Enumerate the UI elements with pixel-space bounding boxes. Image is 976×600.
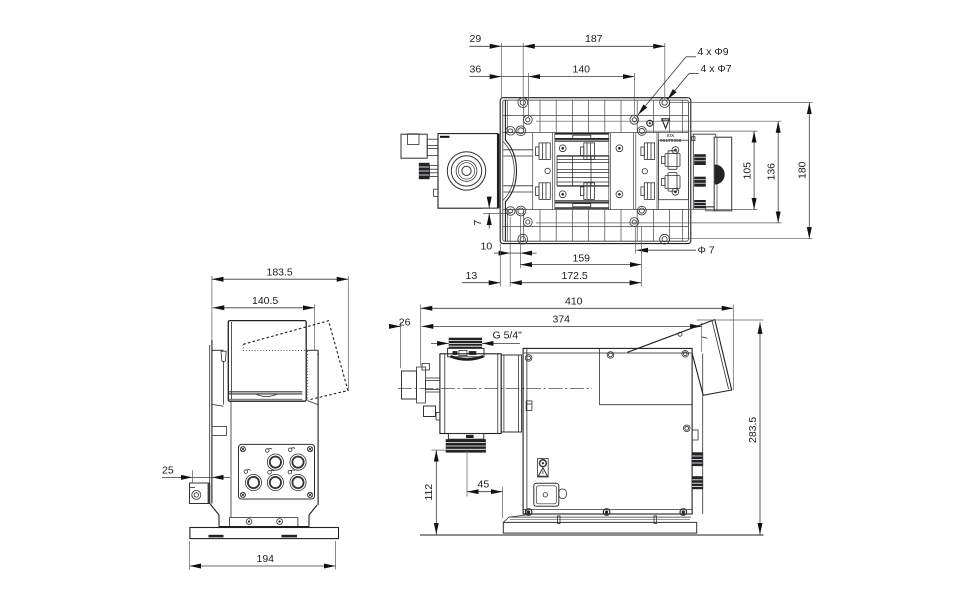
svg-text:194: 194	[257, 553, 275, 565]
svg-text:10: 10	[481, 241, 493, 253]
svg-text:374: 374	[553, 314, 571, 326]
svg-text:140: 140	[573, 64, 591, 76]
svg-text:105: 105	[742, 162, 754, 180]
svg-text:Φ 7: Φ 7	[698, 244, 715, 256]
svg-text:283.5: 283.5	[747, 417, 759, 443]
svg-text:140.5: 140.5	[252, 295, 278, 307]
svg-text:13: 13	[466, 270, 478, 282]
svg-text:26: 26	[399, 317, 411, 329]
svg-text:4 x Φ9: 4 x Φ9	[698, 46, 729, 58]
svg-text:180: 180	[797, 161, 809, 179]
svg-text:4 x Φ7: 4 x Φ7	[701, 63, 732, 75]
svg-text:172.5: 172.5	[562, 270, 588, 282]
svg-text:G 5/4": G 5/4"	[493, 330, 523, 342]
svg-text:06170608: 06170608	[660, 138, 682, 144]
svg-text:410: 410	[565, 296, 583, 308]
svg-text:25: 25	[162, 465, 174, 477]
svg-text:136: 136	[766, 163, 778, 181]
svg-text:45: 45	[478, 479, 490, 491]
svg-text:36: 36	[470, 64, 482, 76]
svg-text:29: 29	[470, 33, 482, 45]
svg-text:183.5: 183.5	[267, 267, 293, 279]
svg-text:187: 187	[585, 33, 603, 45]
svg-text:112: 112	[423, 484, 435, 501]
svg-text:7: 7	[472, 220, 484, 226]
svg-text:159: 159	[573, 253, 591, 265]
